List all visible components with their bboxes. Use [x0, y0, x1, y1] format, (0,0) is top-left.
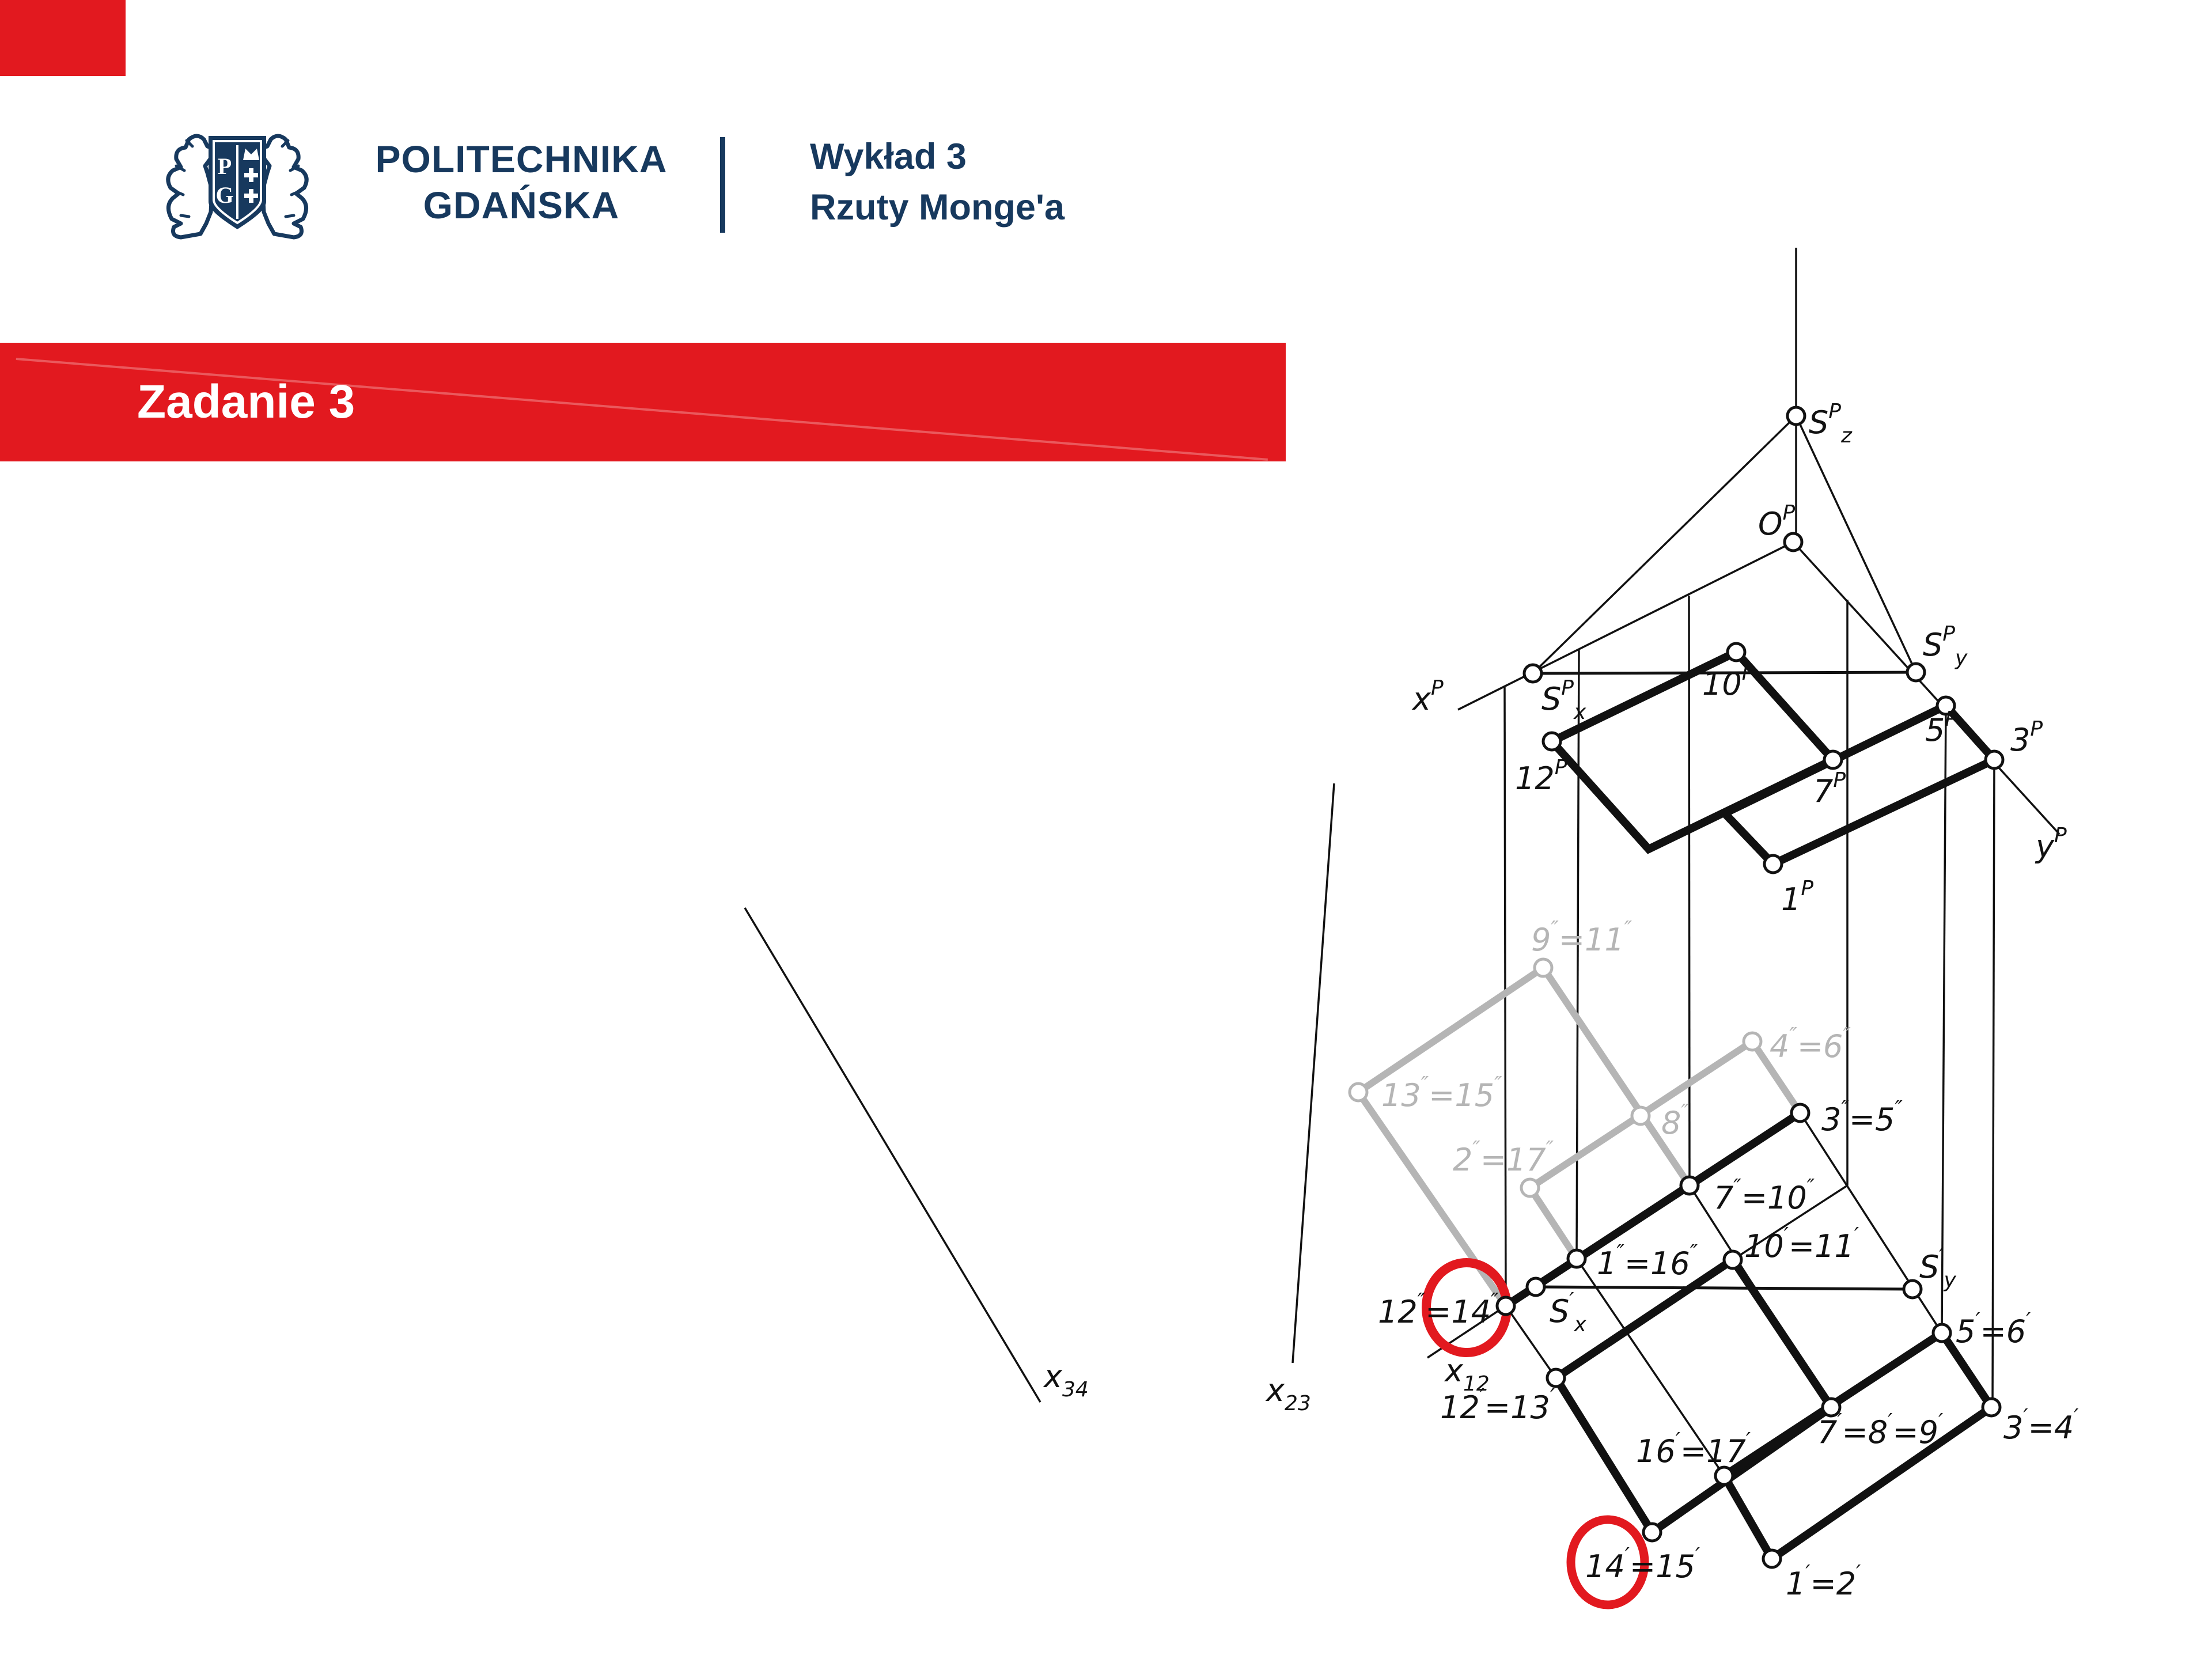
- label-7-p: 7P: [1813, 768, 1846, 809]
- point-marker-27: [1632, 1107, 1649, 1124]
- point-marker-19: [1643, 1524, 1661, 1541]
- label-3-4-prime: 3′=4′: [2003, 1405, 2078, 1446]
- segment-rail-5-6: [1942, 706, 1946, 1333]
- label-sx-prime: S′x: [1550, 1289, 1586, 1336]
- point-marker-5: [1543, 733, 1560, 750]
- label-10-11-prime: 10′=11′: [1744, 1224, 1859, 1264]
- label-14-15-prime: 14′=15′: [1585, 1544, 1700, 1585]
- point-marker-9: [1764, 855, 1782, 873]
- label-sz-p: SPz: [1809, 400, 1853, 448]
- label-2-17-pp: 2″=17″: [1453, 1137, 1554, 1178]
- label-5-6-prime: 5′=6′: [1956, 1309, 2031, 1350]
- point-marker-4: [1728, 643, 1745, 661]
- point-marker-6: [1824, 751, 1842, 768]
- label-8-pp: 8″: [1661, 1100, 1689, 1141]
- segment-x23-axis: [1293, 783, 1334, 1363]
- point-marker-17: [1547, 1369, 1565, 1387]
- slide: P G POLITECHNIKA GDAŃSKA Wykład 3 Rzuty …: [0, 0, 2212, 1659]
- label-1-2-prime: 1′=2′: [1786, 1561, 1861, 1602]
- label-7-8-9-prime: 7′=8′=9′: [1817, 1410, 1943, 1450]
- label-5-p: 5P: [1925, 707, 1957, 748]
- point-marker-22: [1983, 1399, 2000, 1416]
- label-12-13-prime: 12′=13′: [1440, 1385, 1555, 1426]
- label-1-p: 1P: [1781, 877, 1813, 918]
- point-marker-1: [1785, 533, 1802, 551]
- segment-gray-13-1214: [1358, 1092, 1506, 1306]
- label-4-6-pp: 4″=6″: [1770, 1024, 1851, 1065]
- point-marker-12: [1568, 1250, 1585, 1267]
- square-a-pictorial: [1552, 652, 1833, 849]
- point-marker-25: [1350, 1084, 1367, 1101]
- label-x-p: xP: [1411, 676, 1444, 717]
- label-12-p: 12P: [1515, 756, 1567, 797]
- point-marker-28: [1521, 1179, 1539, 1196]
- label-sy-p: SPy: [1923, 622, 1968, 670]
- point-marker-0: [1787, 407, 1805, 425]
- segment-x34-axis: [745, 908, 1040, 1402]
- point-marker-16: [1724, 1251, 1741, 1268]
- segment-gray-2-116: [1530, 1188, 1577, 1259]
- label-7-10-pp: 7″=10″: [1714, 1175, 1815, 1216]
- label-12-14-pp: 12″=14″: [1378, 1289, 1499, 1330]
- point-marker-10: [1791, 1104, 1809, 1122]
- segment-sz-to-sy: [1796, 416, 1916, 672]
- label-1-16-pp: 1″=16″: [1597, 1241, 1698, 1282]
- label-x23: x23: [1265, 1372, 1311, 1415]
- point-marker-14: [1527, 1278, 1544, 1296]
- square-c-horizontal: [1556, 1260, 1831, 1532]
- label-3-p: 3P: [2010, 717, 2043, 758]
- segment-gray-13-9: [1358, 968, 1543, 1092]
- label-16-17-prime: 16′=17′: [1636, 1429, 1751, 1469]
- label-sy-prime: S′y: [1919, 1244, 1956, 1292]
- monge-diagram: SPzOPSPxSPy10P12P7P5P3P1PxPyP9″=11″13″=1…: [0, 0, 2212, 1659]
- segment-rail-7-10: [1689, 596, 1690, 1185]
- point-marker-11: [1681, 1177, 1698, 1194]
- segment-sz-to-sx: [1533, 416, 1796, 673]
- label-10-p: 10P: [1702, 661, 1755, 702]
- point-marker-2: [1524, 665, 1541, 682]
- point-marker-18: [1715, 1467, 1733, 1484]
- label-9-11-pp: 9″=11″: [1531, 917, 1633, 958]
- segment-transfer-3-5: [1800, 1113, 1942, 1333]
- segment-sxp-syp-baseline: [1536, 1287, 1912, 1289]
- label-13-15-pp: 13″=15″: [1381, 1073, 1502, 1113]
- segment-transfer-12-13: [1506, 1306, 1556, 1378]
- segment-rail-3-4: [1993, 760, 1994, 1407]
- point-marker-13: [1497, 1297, 1514, 1315]
- point-marker-15: [1904, 1281, 1921, 1298]
- label-3-5-pp: 3″=5″: [1821, 1097, 1903, 1138]
- point-marker-24: [1535, 959, 1552, 976]
- label-x34: x34: [1043, 1358, 1089, 1402]
- point-marker-8: [1986, 751, 2003, 768]
- point-marker-20: [1763, 1550, 1781, 1567]
- point-marker-23: [1933, 1324, 1950, 1342]
- segment-gray-9-710: [1543, 968, 1690, 1185]
- label-y-p: yP: [2035, 824, 2067, 865]
- point-marker-26: [1744, 1033, 1761, 1050]
- point-marker-3: [1907, 664, 1925, 681]
